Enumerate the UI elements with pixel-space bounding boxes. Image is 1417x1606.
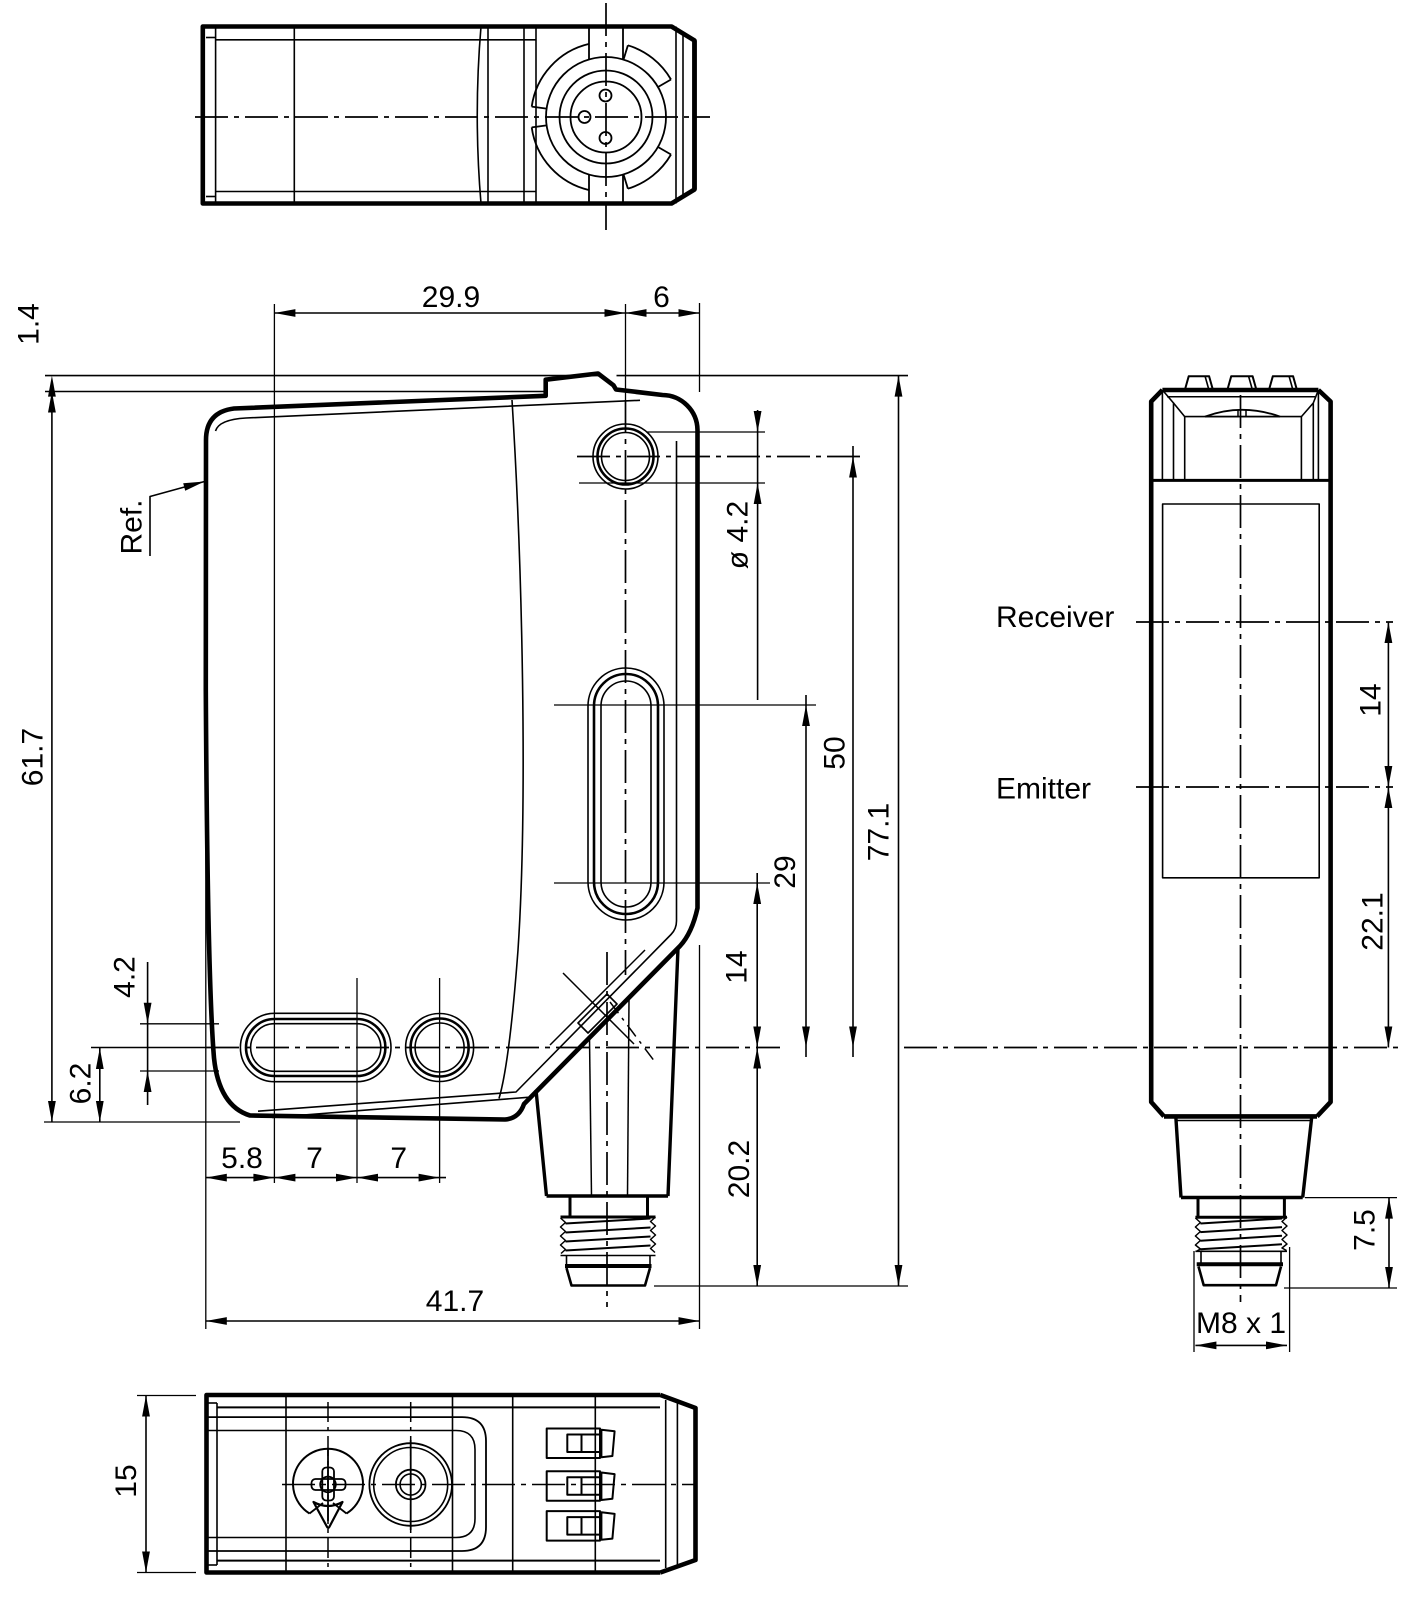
svg-text:7: 7 — [306, 1142, 323, 1175]
svg-text:77.1: 77.1 — [863, 803, 896, 861]
svg-text:ø 4.2: ø 4.2 — [722, 501, 755, 569]
svg-text:22.1: 22.1 — [1357, 892, 1390, 950]
svg-text:6: 6 — [653, 281, 670, 314]
svg-text:61.7: 61.7 — [17, 728, 50, 786]
svg-text:Ref.: Ref. — [116, 499, 149, 554]
svg-text:29: 29 — [769, 855, 802, 888]
svg-text:7: 7 — [390, 1142, 407, 1175]
svg-text:M8 x 1: M8 x 1 — [1196, 1307, 1286, 1340]
svg-text:5.8: 5.8 — [221, 1142, 263, 1175]
svg-text:29.9: 29.9 — [422, 281, 480, 314]
svg-text:41.7: 41.7 — [426, 1285, 484, 1318]
svg-text:20.2: 20.2 — [723, 1140, 756, 1198]
svg-text:7.5: 7.5 — [1349, 1209, 1382, 1251]
svg-text:Emitter: Emitter — [996, 773, 1091, 806]
svg-text:14: 14 — [721, 950, 754, 983]
svg-text:6.2: 6.2 — [65, 1063, 98, 1105]
svg-text:15: 15 — [110, 1464, 143, 1497]
svg-text:50: 50 — [819, 736, 852, 769]
svg-text:Receiver: Receiver — [996, 601, 1114, 634]
svg-text:1.4: 1.4 — [13, 303, 46, 345]
svg-text:14: 14 — [1355, 683, 1388, 716]
svg-text:4.2: 4.2 — [109, 956, 142, 998]
